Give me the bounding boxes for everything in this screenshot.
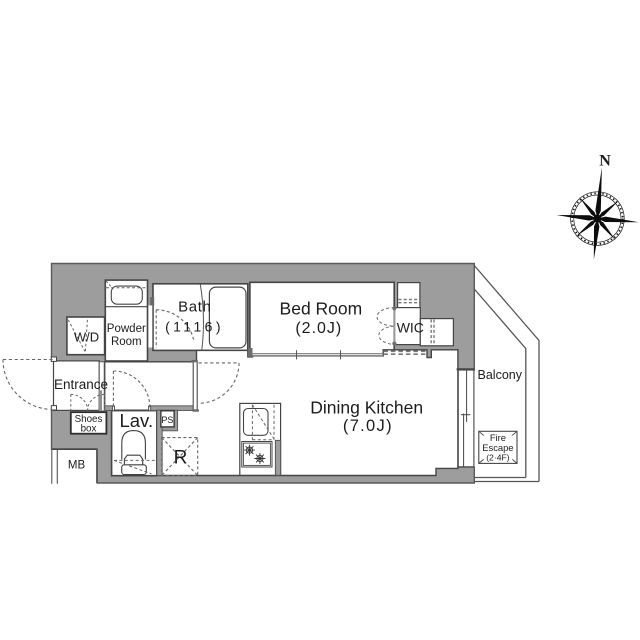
svg-text:Entrance: Entrance (54, 377, 108, 392)
svg-text:Bed Room: Bed Room (280, 299, 363, 319)
svg-text:Bath: Bath (178, 299, 211, 316)
svg-text:(2.0J): (2.0J) (295, 320, 342, 337)
svg-text:Room: Room (111, 336, 142, 348)
svg-text:(1116): (1116) (165, 319, 224, 335)
svg-text:Lav.: Lav. (119, 410, 153, 431)
svg-text:N: N (599, 153, 611, 170)
svg-text:WIC: WIC (397, 320, 424, 336)
svg-text:Powder: Powder (107, 323, 146, 335)
svg-text:Balcony: Balcony (478, 368, 523, 382)
svg-text:MB: MB (68, 460, 86, 472)
svg-text:(2·4F): (2·4F) (486, 452, 510, 462)
svg-text:(7.0J): (7.0J) (343, 417, 393, 435)
svg-text:R: R (174, 448, 188, 469)
svg-text:PS: PS (161, 415, 173, 425)
svg-text:Dining Kitchen: Dining Kitchen (310, 397, 423, 417)
svg-text:Escape: Escape (482, 442, 513, 453)
svg-text:box: box (81, 424, 97, 435)
svg-text:W/D: W/D (74, 330, 99, 345)
